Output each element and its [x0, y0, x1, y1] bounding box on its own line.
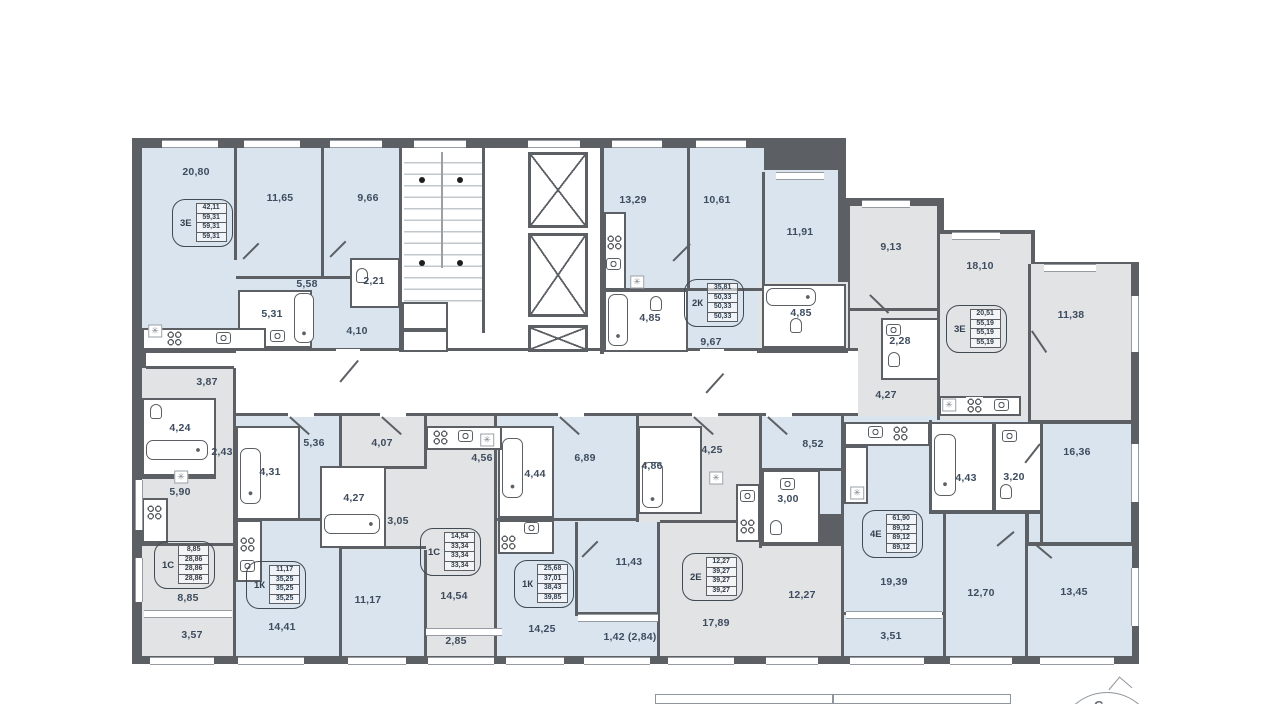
window — [1040, 657, 1114, 665]
window — [668, 657, 734, 665]
toilet — [790, 318, 802, 333]
room-area-label: 9,13 — [880, 241, 901, 253]
appliance-icon: ✳ — [480, 434, 494, 447]
appliance-icon: ✳ — [850, 487, 864, 500]
window — [612, 140, 662, 148]
room-area-label: 4,86 — [641, 460, 662, 472]
scale-bar — [655, 694, 833, 704]
window — [528, 140, 580, 148]
appliance-icon: ✳ — [942, 399, 956, 412]
apartment-stat-card: 1К 11,1735,25 35,2535,25 — [246, 561, 306, 609]
room-area-label: 4,56 — [471, 452, 492, 464]
apartment-3e-right — [850, 206, 940, 420]
room-area-label: 8,52 — [802, 438, 823, 450]
room-area-label: 5,31 — [261, 308, 282, 320]
room-area-label: 4,25 — [701, 444, 722, 456]
window — [428, 657, 494, 665]
apartment-4e — [1029, 424, 1131, 544]
sink — [458, 430, 473, 442]
sink — [780, 478, 795, 490]
window — [1044, 264, 1096, 272]
stair-post — [419, 260, 425, 266]
room-area-label: 3,05 — [387, 515, 408, 527]
room-area-label: 11,38 — [1058, 309, 1085, 321]
stove — [892, 425, 909, 442]
balcony-glazing — [578, 614, 658, 622]
room-area-label: 4,85 — [639, 312, 660, 324]
room-area-label: 4,85 — [790, 307, 811, 319]
window — [238, 657, 304, 665]
stove — [606, 234, 623, 251]
stove — [146, 504, 163, 521]
room-area-label: 4,10 — [346, 325, 367, 337]
apartment-4e — [1028, 546, 1132, 656]
bathtub — [502, 438, 523, 498]
apartment-stat-card: 1С 14,5433,34 33,3433,34 — [420, 528, 481, 576]
sink — [216, 332, 231, 344]
room-area-label: 1,42 (2,84) — [604, 631, 657, 643]
apartment-type: 4Е — [870, 529, 882, 540]
room-area-label: 13,45 — [1060, 586, 1087, 598]
window — [244, 140, 300, 148]
toilet — [150, 404, 162, 419]
appliance-icon: ✳ — [709, 472, 723, 485]
kitchen-counter — [844, 422, 930, 446]
stove — [432, 429, 449, 446]
room-area-label: 4,44 — [524, 468, 545, 480]
window — [766, 657, 818, 665]
apartment-type: 3Е — [954, 324, 966, 335]
bathtub — [240, 448, 261, 504]
room-area-label: 4,24 — [169, 422, 190, 434]
balcony-glazing — [846, 611, 942, 619]
service-shaft — [402, 330, 448, 352]
stair-post — [457, 260, 463, 266]
room-area-label: 3,20 — [1003, 471, 1024, 483]
apartment-stat-card: 2Е 12,2739,27 39,2739,27 — [682, 553, 743, 601]
window — [950, 657, 1012, 665]
bathtub — [608, 294, 628, 346]
window — [135, 558, 143, 602]
apartment-stat-card: 1К 25,6837,01 38,4339,85 — [514, 560, 574, 608]
room-area-label: 10,61 — [703, 194, 730, 206]
room-area-label: 5,36 — [303, 437, 324, 449]
window — [1131, 296, 1139, 352]
window — [584, 657, 650, 665]
room-area-label: 19,39 — [880, 576, 907, 588]
room-area-label: 6,89 — [574, 452, 595, 464]
room-area-label: 2,43 — [211, 446, 232, 458]
bathtub — [146, 440, 208, 460]
apartment-3e-right — [1029, 264, 1131, 422]
stove — [239, 536, 256, 553]
window — [1131, 444, 1139, 502]
sink — [994, 399, 1009, 411]
room-area-label: 18,10 — [966, 260, 993, 272]
bathtub — [766, 288, 816, 306]
apartment-type: 1С — [162, 560, 174, 571]
toilet — [888, 352, 900, 367]
window — [850, 657, 924, 665]
room-area-label: 9,67 — [700, 336, 721, 348]
toilet — [770, 520, 782, 535]
scale-bar — [833, 694, 1011, 704]
window — [952, 232, 1000, 240]
room-area-label: 14,25 — [528, 623, 555, 635]
room-area-label: 12,70 — [967, 587, 994, 599]
stove — [166, 330, 183, 347]
room-area-label: 11,65 — [267, 192, 294, 204]
apartment-stat-card: 2К 35,8150,33 50,3350,33 — [684, 279, 744, 327]
stove — [739, 518, 756, 535]
room-area-label: 11,17 — [355, 594, 382, 606]
sink — [524, 522, 539, 534]
apartment-stat-card: 3Е 42,1159,31 59,3159,31 — [172, 199, 233, 247]
room-area-label: 8,85 — [177, 592, 198, 604]
window — [776, 172, 824, 180]
room-area-label: 11,43 — [616, 556, 643, 568]
floor-plan: ✳ ✳ ✳ ✳ ✳ ✳ ✳ — [0, 0, 1280, 704]
appliance-icon: ✳ — [148, 325, 162, 338]
room-area-label: 2,28 — [889, 335, 910, 347]
stove — [966, 397, 983, 414]
apartment-stat-card: 3Е 20,5155,19 55,1955,19 — [946, 305, 1007, 353]
room-area-label: 3,51 — [880, 630, 901, 642]
apartment-type: 2К — [692, 298, 703, 309]
window — [506, 657, 564, 665]
window — [414, 140, 466, 148]
room-area-label: 5,90 — [169, 486, 190, 498]
sink — [270, 330, 285, 342]
room-area-label: 3,00 — [777, 493, 798, 505]
room-area-label: 11,91 — [787, 226, 814, 238]
window — [330, 140, 382, 148]
stair-post — [419, 177, 425, 183]
apartment-type: 1К — [522, 579, 533, 590]
bathtub — [934, 434, 956, 496]
toilet — [650, 296, 662, 311]
bathtub — [294, 293, 314, 343]
room-area-label: 4,27 — [875, 389, 896, 401]
room-area-label: 14,41 — [268, 621, 295, 633]
apartment-stat-card: 1С 8,8528,86 28,8628,86 — [154, 541, 215, 589]
room-area-label: 4,27 — [343, 492, 364, 504]
elevator-shaft — [528, 152, 588, 228]
service-shaft — [402, 302, 448, 330]
room-area-label: 14,54 — [440, 590, 467, 602]
apartment-type: 1К — [254, 580, 265, 591]
common-corridor — [230, 350, 858, 414]
room-area-label: 2,21 — [363, 275, 384, 287]
sink — [606, 258, 621, 270]
room-area-label: 4,07 — [371, 437, 392, 449]
apartment-type: 1С — [428, 547, 440, 558]
bathtub — [324, 514, 380, 534]
window — [135, 480, 143, 530]
appliance-icon: ✳ — [174, 471, 188, 484]
apartment-stat-card: 4Е 61,9089,12 89,1289,12 — [862, 510, 923, 558]
apartment-type: 2Е — [690, 572, 702, 583]
window — [696, 140, 746, 148]
room-area-label: 9,66 — [357, 192, 378, 204]
room-area-label: 5,58 — [296, 278, 317, 290]
room-area-label: 4,31 — [259, 466, 280, 478]
room-area-label: 4,43 — [955, 472, 976, 484]
room-area-label: 16,36 — [1063, 446, 1090, 458]
kitchen-counter — [604, 212, 626, 290]
window — [862, 200, 910, 208]
compass-rose — [1058, 692, 1156, 704]
window — [150, 657, 214, 665]
elevator-shaft — [528, 325, 588, 352]
toilet — [1000, 484, 1012, 499]
room-area-label: 17,89 — [702, 617, 729, 629]
elevator-shaft — [528, 233, 588, 317]
apartment-4e — [946, 514, 1026, 656]
bathroom — [320, 466, 386, 548]
room-area-label: 3,57 — [181, 629, 202, 641]
window — [1131, 568, 1139, 626]
stair-post — [457, 177, 463, 183]
apartment-type: 3Е — [180, 218, 192, 229]
staircase — [404, 152, 482, 302]
sink — [868, 426, 883, 438]
room-area-label: 3,87 — [196, 376, 217, 388]
window — [162, 140, 218, 148]
balcony-glazing — [144, 610, 232, 618]
room-area-label: 13,29 — [619, 194, 646, 206]
sink — [1002, 430, 1017, 442]
compass-north-label: С — [1094, 698, 1103, 704]
room-area-label: 20,80 — [182, 166, 209, 178]
stove — [500, 534, 517, 551]
room-area-label: 2,85 — [445, 635, 466, 647]
room-area-label: 12,27 — [788, 589, 815, 601]
appliance-icon: ✳ — [630, 276, 644, 289]
sink — [740, 490, 755, 502]
window — [348, 657, 406, 665]
